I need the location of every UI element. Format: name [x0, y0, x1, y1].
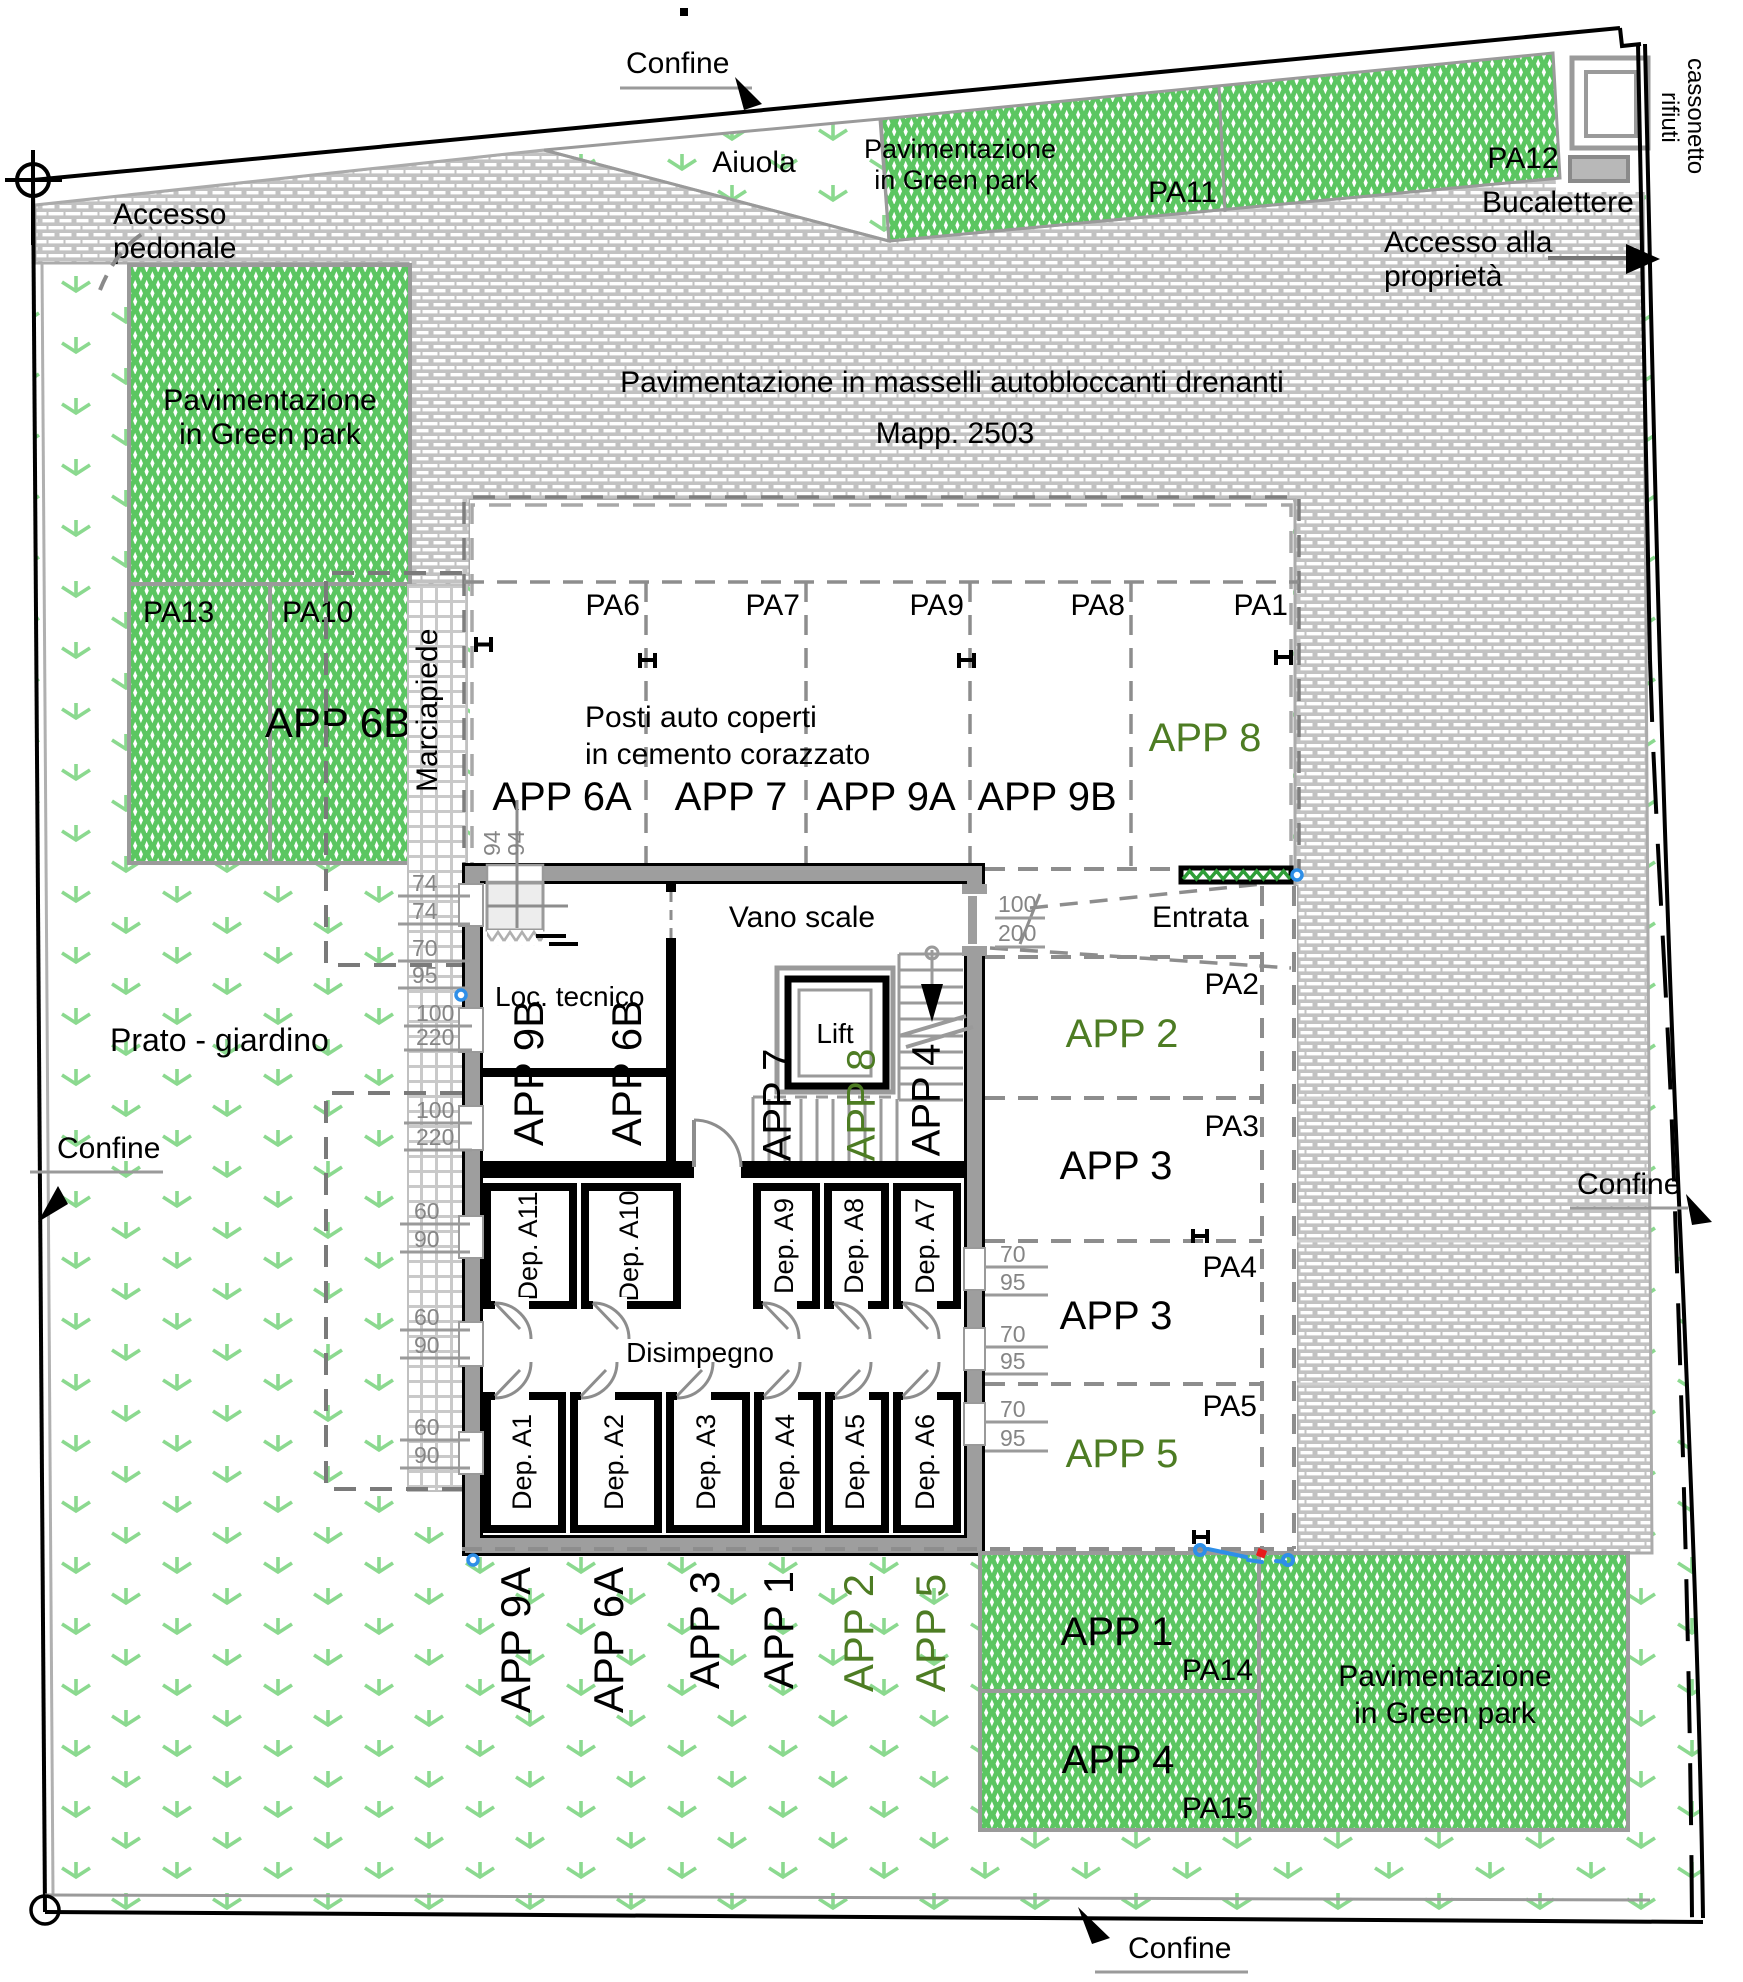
svg-text:Dep. A3: Dep. A3 — [691, 1414, 721, 1510]
svg-text:Disimpegno: Disimpegno — [626, 1337, 774, 1368]
svg-text:PA11: PA11 — [1148, 176, 1217, 209]
svg-text:PA3: PA3 — [1205, 1110, 1259, 1143]
svg-text:APP 6B: APP 6B — [265, 699, 411, 746]
svg-text:60: 60 — [414, 1198, 440, 1224]
svg-text:74: 74 — [412, 898, 438, 924]
svg-text:APP 9B: APP 9B — [505, 1000, 552, 1146]
svg-text:pedonale: pedonale — [113, 232, 236, 265]
svg-text:Dep. A1: Dep. A1 — [507, 1414, 537, 1510]
svg-text:in Green park: in Green park — [874, 165, 1038, 195]
svg-text:Pavimentazione: Pavimentazione — [864, 134, 1056, 164]
svg-text:Dep. A7: Dep. A7 — [910, 1198, 940, 1294]
svg-text:70: 70 — [1000, 1241, 1026, 1267]
svg-text:70: 70 — [412, 935, 438, 961]
svg-text:Prato - giardino: Prato - giardino — [110, 1022, 329, 1058]
svg-text:100: 100 — [416, 1097, 454, 1123]
svg-text:95: 95 — [412, 962, 438, 988]
svg-text:PA13: PA13 — [143, 596, 214, 629]
svg-text:Dep. A8: Dep. A8 — [839, 1198, 869, 1294]
svg-text:60: 60 — [414, 1414, 440, 1440]
svg-text:APP 1: APP 1 — [755, 1571, 802, 1689]
svg-text:APP 9B: APP 9B — [977, 775, 1116, 819]
svg-text:Confine: Confine — [57, 1132, 160, 1165]
svg-text:Marciapiede: Marciapiede — [411, 629, 444, 792]
svg-text:PA9: PA9 — [910, 589, 964, 622]
svg-text:APP 5: APP 5 — [1066, 1432, 1179, 1476]
svg-text:APP 4: APP 4 — [905, 1044, 949, 1157]
svg-text:APP 7: APP 7 — [756, 1049, 800, 1162]
svg-text:PA4: PA4 — [1203, 1251, 1257, 1284]
svg-text:APP 9A: APP 9A — [492, 1567, 539, 1713]
svg-text:95: 95 — [1000, 1348, 1026, 1374]
svg-text:220: 220 — [416, 1124, 454, 1150]
svg-text:APP 5: APP 5 — [907, 1574, 954, 1692]
svg-text:100: 100 — [416, 1000, 454, 1026]
svg-text:APP 3: APP 3 — [1060, 1294, 1173, 1338]
svg-text:95: 95 — [1000, 1269, 1026, 1295]
svg-text:APP 3: APP 3 — [1060, 1144, 1173, 1188]
svg-text:Accesso: Accesso — [113, 198, 226, 231]
svg-text:PA14: PA14 — [1182, 1654, 1253, 1687]
svg-text:PA2: PA2 — [1205, 968, 1259, 1001]
svg-text:Pavimentazione: Pavimentazione — [1338, 1660, 1551, 1693]
svg-text:Confine: Confine — [626, 47, 729, 80]
svg-text:in Green park: in Green park — [179, 418, 362, 451]
svg-text:in cemento corazzato: in cemento corazzato — [585, 738, 870, 771]
svg-text:APP 2: APP 2 — [835, 1574, 882, 1692]
svg-text:PA6: PA6 — [586, 589, 640, 622]
svg-text:APP 8: APP 8 — [1149, 716, 1262, 760]
svg-text:proprietà: proprietà — [1384, 260, 1503, 293]
svg-text:APP 1: APP 1 — [1061, 1610, 1174, 1654]
svg-text:Dep. A4: Dep. A4 — [770, 1414, 800, 1510]
svg-text:APP 6A: APP 6A — [585, 1567, 632, 1713]
svg-text:90: 90 — [414, 1332, 440, 1358]
svg-text:70: 70 — [1000, 1396, 1026, 1422]
svg-text:APP 6B: APP 6B — [603, 1000, 650, 1146]
svg-text:APP 6A: APP 6A — [492, 775, 632, 819]
svg-text:PA12: PA12 — [1487, 142, 1558, 175]
svg-text:PA7: PA7 — [746, 589, 800, 622]
svg-text:PA8: PA8 — [1071, 589, 1125, 622]
svg-text:Dep. A10: Dep. A10 — [614, 1190, 644, 1301]
svg-text:Posti auto coperti: Posti auto coperti — [585, 701, 817, 734]
svg-text:PA1: PA1 — [1234, 589, 1288, 622]
svg-text:94: 94 — [503, 830, 529, 856]
svg-text:Lift: Lift — [816, 1018, 854, 1049]
svg-text:Entrata: Entrata — [1152, 901, 1249, 934]
svg-text:90: 90 — [414, 1442, 440, 1468]
svg-text:90: 90 — [414, 1226, 440, 1252]
svg-text:Dep. A2: Dep. A2 — [599, 1414, 629, 1510]
svg-text:Dep. A6: Dep. A6 — [910, 1414, 940, 1510]
svg-text:94: 94 — [479, 830, 505, 856]
svg-text:Mapp. 2503: Mapp. 2503 — [876, 417, 1034, 450]
svg-text:APP 8: APP 8 — [840, 1049, 884, 1162]
svg-text:PA10: PA10 — [282, 596, 353, 629]
svg-text:200: 200 — [998, 920, 1036, 946]
svg-text:in Green park: in Green park — [1354, 1697, 1537, 1730]
svg-text:cassonetto: cassonetto — [1682, 58, 1709, 174]
svg-text:95: 95 — [1000, 1425, 1026, 1451]
svg-text:APP 9A: APP 9A — [816, 775, 956, 819]
svg-text:Confine: Confine — [1577, 1168, 1680, 1201]
svg-text:Pavimentazione: Pavimentazione — [163, 384, 376, 417]
svg-text:APP 3: APP 3 — [681, 1571, 728, 1689]
svg-text:APP 2: APP 2 — [1066, 1012, 1179, 1056]
svg-text:60: 60 — [414, 1304, 440, 1330]
svg-text:Accesso alla: Accesso alla — [1384, 226, 1553, 259]
svg-text:74: 74 — [412, 870, 438, 896]
svg-text:APP 4: APP 4 — [1062, 1738, 1175, 1782]
svg-text:Aiuola: Aiuola — [712, 146, 796, 179]
svg-text:Pavimentazione in masselli aut: Pavimentazione in masselli autobloccanti… — [620, 366, 1284, 399]
svg-text:220: 220 — [416, 1024, 454, 1050]
svg-text:Vano scale: Vano scale — [729, 901, 875, 934]
svg-text:PA15: PA15 — [1182, 1792, 1253, 1825]
svg-text:rifiuti: rifiuti — [1656, 92, 1683, 143]
svg-text:Confine: Confine — [1128, 1932, 1231, 1965]
svg-text:Bucalettere: Bucalettere — [1482, 186, 1634, 219]
svg-text:70: 70 — [1000, 1321, 1026, 1347]
svg-text:APP 7: APP 7 — [675, 775, 788, 819]
svg-text:PA5: PA5 — [1203, 1390, 1257, 1423]
svg-text:Dep. A11: Dep. A11 — [513, 1191, 543, 1300]
svg-text:100: 100 — [998, 891, 1036, 917]
svg-text:Dep. A9: Dep. A9 — [769, 1198, 799, 1294]
svg-text:Dep. A5: Dep. A5 — [840, 1414, 870, 1510]
